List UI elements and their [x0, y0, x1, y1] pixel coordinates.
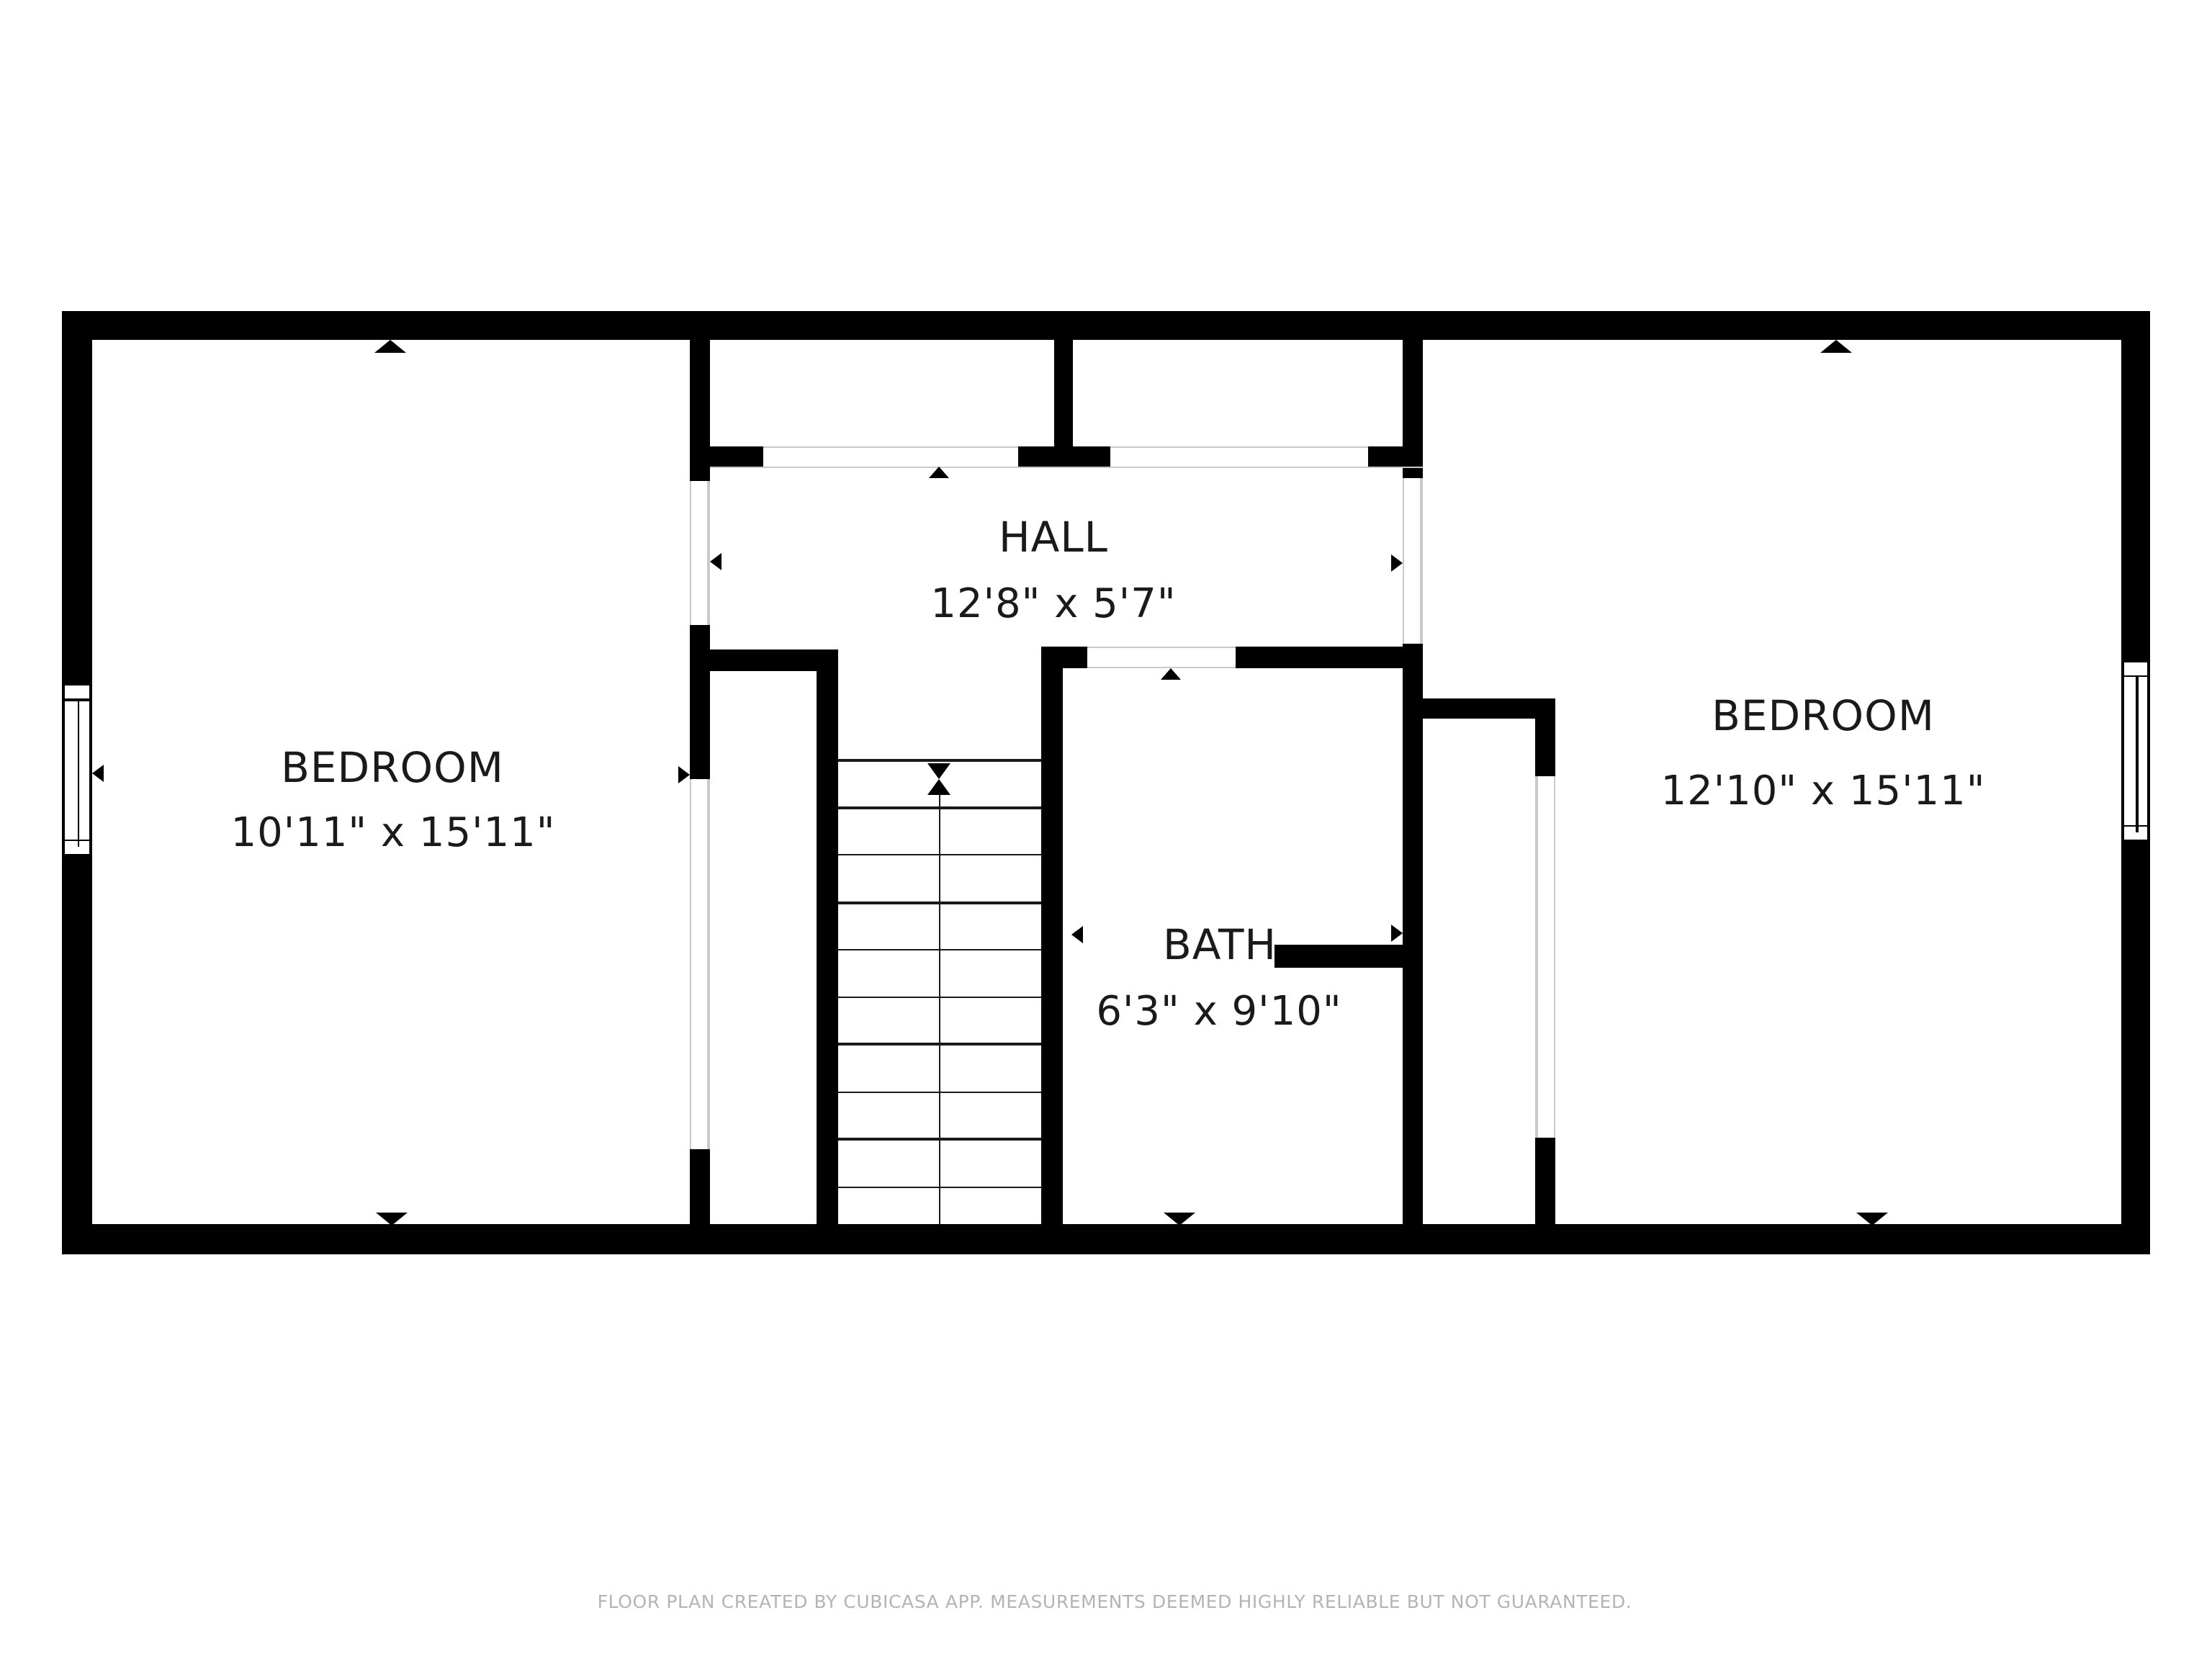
- doorway-hall-west-jamb: [707, 481, 709, 625]
- rcloset-opening-jamb: [1553, 775, 1555, 1138]
- wall-hall-west-lower: [689, 1148, 709, 1224]
- wall-outer-top: [62, 311, 2150, 340]
- bath-arrow-right-icon: [1390, 925, 1402, 942]
- wall-rcloset-top: [1422, 698, 1555, 719]
- room-dims-bath: 6'3" x 9'10": [1096, 987, 1341, 1035]
- window-mullion-line: [2136, 675, 2138, 832]
- closet-arrow-right-icon: [678, 765, 689, 783]
- bath-door-arrow-up-icon: [1161, 668, 1181, 680]
- wall-rcloset-east-lower: [1535, 1138, 1555, 1224]
- arrow-up-icon: [1820, 340, 1852, 353]
- hall-north-face-line: [709, 467, 1422, 468]
- wall-hall-west-upper: [689, 340, 709, 481]
- stair-direction-line: [938, 786, 940, 1224]
- window-arrow-left-icon: [92, 765, 104, 782]
- doorway-hall-west-jamb: [689, 481, 691, 625]
- wall-outer-bottom: [62, 1224, 2150, 1254]
- room-name-bedroom-right: BEDROOM: [1712, 691, 1935, 740]
- wall-bedroom-closet: [689, 625, 709, 779]
- wall-bath-top-left: [1040, 647, 1087, 667]
- room-dims-bedroom-right: 12'10" x 15'11": [1660, 767, 1985, 814]
- room-name-hall: HALL: [999, 512, 1108, 561]
- wall-rcloset-bottom-left: [1073, 446, 1110, 467]
- closet-opening-jamb: [689, 779, 691, 1148]
- bath-door-line: [1087, 666, 1235, 667]
- bath-arrow-left-icon: [1071, 925, 1083, 943]
- arrow-down-icon: [1856, 1212, 1888, 1225]
- doorway-hall-east-jamb: [1420, 477, 1422, 643]
- stair-arrow-down-icon: [927, 763, 950, 778]
- window-right: [2121, 659, 2150, 842]
- footer-disclaimer: FLOOR PLAN CREATED BY CUBICASA APP. MEAS…: [598, 1591, 1632, 1612]
- arrow-down-icon: [1164, 1212, 1195, 1225]
- wall-lcloset-bottom-left: [709, 446, 763, 467]
- rcloset-opening-jamb: [1535, 775, 1537, 1138]
- doorway-arrow-right-icon: [1390, 554, 1402, 571]
- wall-closet-divider: [1053, 340, 1073, 446]
- arrow-up-icon: [374, 340, 405, 353]
- wall-stairs-east: [1040, 647, 1062, 1224]
- wall-rcloset-east-upper: [1535, 719, 1555, 775]
- window-left: [62, 683, 92, 857]
- room-name-bedroom-left: BEDROOM: [281, 743, 504, 792]
- rcloset-door-line: [1110, 446, 1368, 448]
- wall-lcloset-bottom-right: [1017, 446, 1073, 467]
- room-dims-bedroom-left: 10'11" x 15'11": [230, 809, 555, 856]
- wall-rcloset-bottom-right: [1368, 446, 1422, 467]
- closet-door-arrow-up-icon: [928, 467, 948, 478]
- floor-plan-page: BEDROOM 10'11" x 15'11" HALL 12'8" x 5'7…: [0, 0, 2212, 1659]
- doorway-arrow-left-icon: [710, 553, 721, 570]
- stair-tread: [837, 759, 1040, 761]
- doorway-hall-east-jamb: [1402, 477, 1404, 643]
- wall-stairs-west: [816, 649, 837, 1224]
- room-dims-hall: 12'8" x 5'7": [930, 579, 1176, 626]
- window-mullion-line: [77, 698, 79, 847]
- arrow-down-icon: [376, 1212, 408, 1225]
- bath-door-line: [1087, 647, 1235, 648]
- room-name-bath: BATH: [1163, 920, 1277, 968]
- stair-arrow-up-icon: [927, 778, 950, 794]
- closet-opening-jamb: [707, 779, 709, 1148]
- wall-bath-top-right: [1235, 647, 1422, 667]
- wall-bath-east: [1402, 643, 1422, 1224]
- wall-bath-stub: [1274, 945, 1402, 968]
- lcloset-door-line: [763, 446, 1017, 448]
- floor-plan: BEDROOM 10'11" x 15'11" HALL 12'8" x 5'7…: [0, 0, 2212, 1659]
